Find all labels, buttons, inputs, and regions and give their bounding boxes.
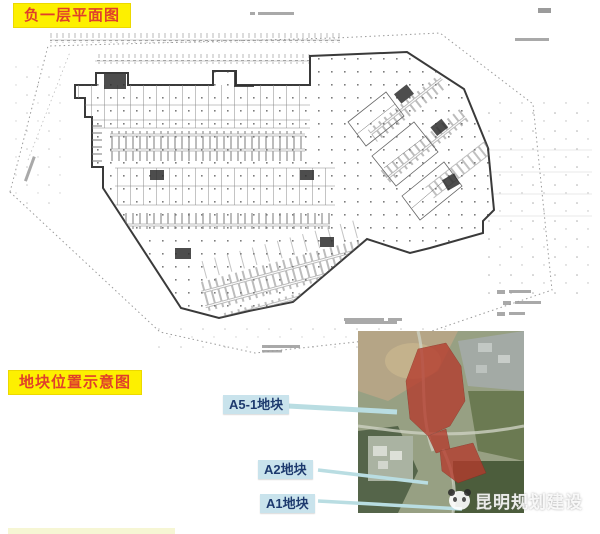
next-banner-sliver bbox=[8, 528, 175, 534]
plot-label-a2: A2地块 bbox=[258, 460, 313, 479]
location-title-banner: 地块位置示意图 bbox=[8, 370, 142, 395]
plot-label-a5-1: A5-1地块 bbox=[223, 395, 289, 414]
plan-title-text: 负一层平面图 bbox=[24, 7, 120, 24]
watermark-text: 昆明规划建设 bbox=[475, 488, 583, 513]
plan-title-banner: 负一层平面图 bbox=[13, 3, 131, 28]
plot-label-a5-1-text: A5-1地块 bbox=[229, 397, 283, 412]
basement-floor-plan-drawing bbox=[0, 0, 600, 360]
satellite-map bbox=[358, 331, 524, 513]
plot-label-a1-text: A1地块 bbox=[266, 496, 309, 511]
plot-label-a2-text: A2地块 bbox=[264, 462, 307, 477]
watermark: 昆明规划建设 bbox=[449, 488, 583, 513]
panda-icon bbox=[449, 491, 470, 510]
dimension-ticks bbox=[50, 33, 340, 64]
plan-interior bbox=[75, 52, 497, 332]
article-image: 负一层平面图 地块位置示意图 A5-1地块 A2地块 A1地块 昆明规划建设 bbox=[0, 0, 600, 534]
location-title-text: 地块位置示意图 bbox=[19, 374, 131, 391]
plot-label-a1: A1地块 bbox=[260, 494, 315, 513]
